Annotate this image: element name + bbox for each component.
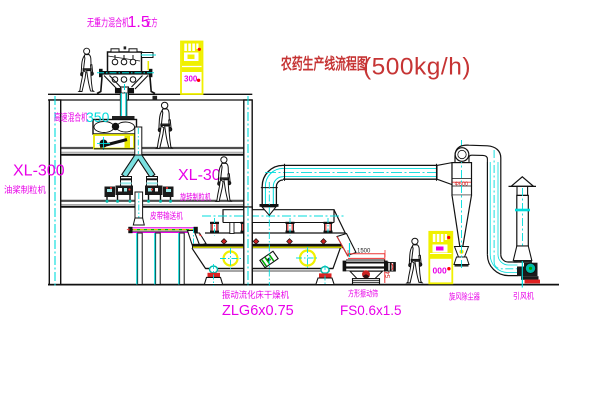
- svg-text:FS0.6x1.5: FS0.6x1.5: [340, 303, 402, 318]
- svg-text:旋风除尘器: 旋风除尘器: [449, 290, 480, 301]
- svg-text:无重力混合机: 无重力混合机: [87, 15, 129, 28]
- svg-text:300: 300: [184, 75, 198, 84]
- svg-text:农药生产线流程图: 农药生产线流程图: [280, 54, 367, 73]
- svg-text:引风机: 引风机: [513, 290, 534, 301]
- svg-text:1500: 1500: [357, 249, 371, 255]
- svg-text:高速混合机: 高速混合机: [54, 110, 88, 123]
- svg-text:350: 350: [86, 109, 110, 125]
- svg-text:000: 000: [433, 266, 447, 276]
- svg-text:旋转制粒机: 旋转制粒机: [180, 191, 211, 202]
- svg-text:XL-300: XL-300: [13, 163, 65, 180]
- svg-text:(500kg/h): (500kg/h): [363, 54, 471, 81]
- svg-text:振动流化床干燥机: 振动流化床干燥机: [222, 289, 289, 300]
- svg-text:立方: 立方: [145, 15, 158, 28]
- svg-text:方形振动筛: 方形振动筛: [348, 288, 378, 298]
- svg-text:油桨制粒机: 油桨制粒机: [4, 184, 46, 195]
- svg-text:皮带输送机: 皮带输送机: [150, 210, 183, 221]
- svg-text:ZLG6x0.75: ZLG6x0.75: [222, 303, 294, 319]
